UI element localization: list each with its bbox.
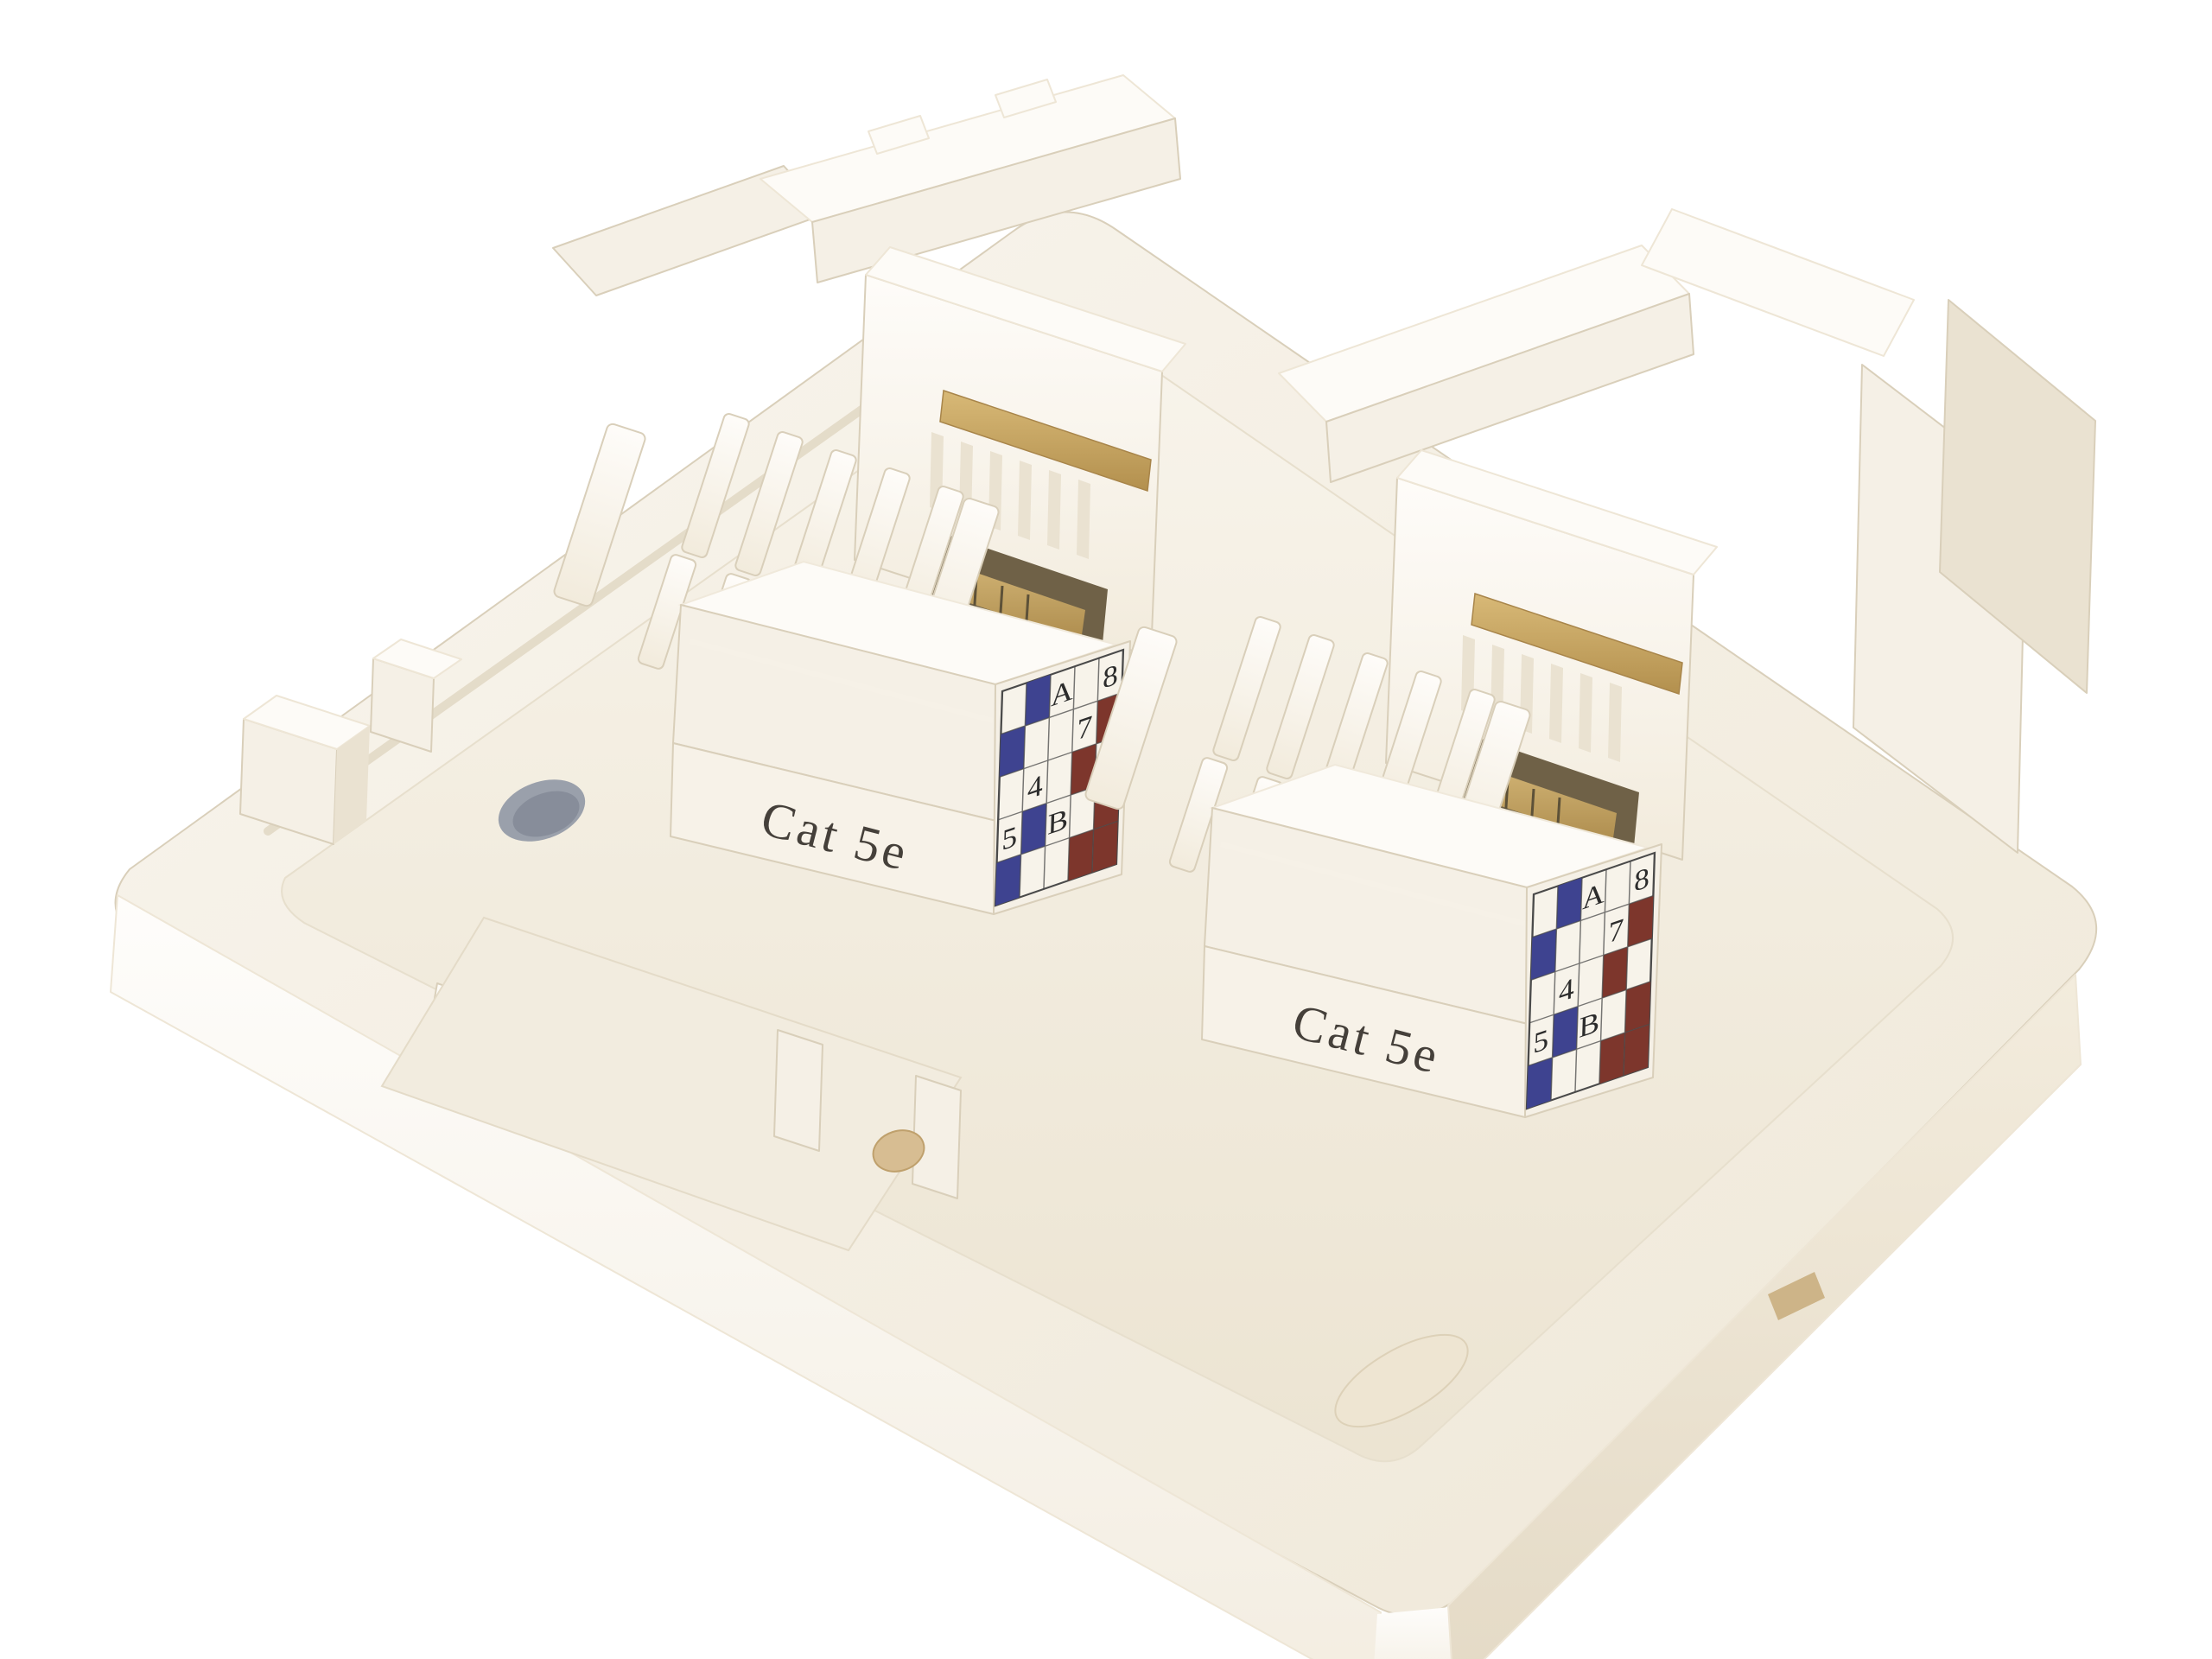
pin-4: 4 <box>1558 971 1574 1009</box>
pin-8: 8 <box>1634 861 1650 899</box>
product-photo: Cat 5e 5 4 A B 7 <box>0 0 2212 1659</box>
pin-8: 8 <box>1103 658 1119 696</box>
pin-5: 5 <box>1533 1022 1549 1060</box>
pin-4: 4 <box>1027 768 1043 806</box>
cable-tie-post <box>774 1030 823 1151</box>
pin-7: 7 <box>1077 709 1093 747</box>
outer-wall-corner <box>1372 1607 1453 1659</box>
pin-7: 7 <box>1608 912 1624 950</box>
wiring-chart-sticker: 5 4 A B 7 8 <box>1527 853 1655 1109</box>
pin-5: 5 <box>1001 819 1018 857</box>
